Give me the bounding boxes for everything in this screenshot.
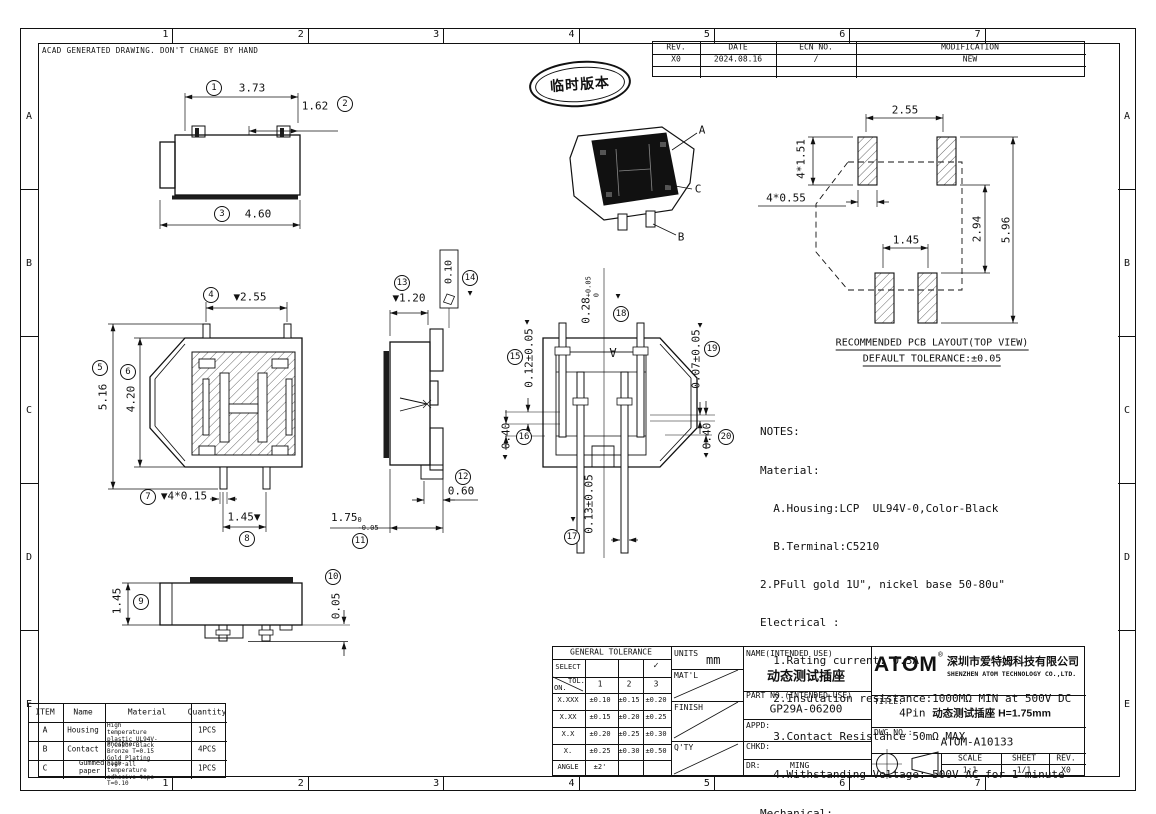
major-dim-marker: ▼: [704, 451, 709, 460]
tol-row-label: ANGLE: [557, 763, 578, 771]
balloon-2: 2: [337, 96, 353, 112]
tol-value: ±0.30: [618, 747, 639, 755]
pcb-dim-top-pitch: 2.55: [892, 104, 919, 117]
material-row-material: high-temperature adhesive tape T=0.10: [107, 761, 161, 788]
chkd-label: CHKD:: [746, 742, 770, 751]
on-label: ON.: [554, 684, 567, 692]
balloon-6: 6: [120, 364, 136, 380]
dwg-no-value: ATOM-A10133: [941, 736, 1014, 749]
dwg-no-label: DWG NO.:: [874, 728, 913, 737]
tol-value: ±0.25: [618, 730, 639, 738]
balloon-1: 1: [206, 80, 222, 96]
balloon-13: 13: [394, 275, 410, 291]
balloon-12: 12: [455, 469, 471, 485]
material-row-item: C: [43, 764, 48, 773]
dim-pin-thickness: ▼4*0.15: [161, 490, 207, 503]
rev-header: REV.: [666, 43, 685, 52]
material-row-item: A: [43, 726, 48, 735]
qty-label: Q'TY: [674, 743, 693, 752]
flatness-value: 0.10: [444, 260, 455, 284]
tol-value: ±0.25: [645, 713, 666, 721]
dim-depth: 1.750-0.05: [331, 506, 379, 532]
dim-total-height: 5.16: [97, 384, 110, 411]
rev-label: REV.: [1056, 754, 1075, 763]
name-label: NAME(INTENDED USE): [746, 649, 833, 658]
material-row-qty: 1PCS: [198, 764, 216, 773]
pcb-dim-bot-pitch: 1.45: [893, 234, 920, 247]
dim-standoff: 0.05: [330, 593, 343, 620]
balloon-5: 5: [92, 360, 108, 376]
balloon-4: 4: [203, 287, 219, 303]
pcb-layout-title: RECOMMENDED PCB LAYOUT(TOP VIEW): [836, 338, 1029, 351]
materials-header-qty: Quantity: [188, 708, 227, 717]
dim-front-width: 4.60: [245, 208, 272, 221]
dim-gap-028: 0.28+0.050: [580, 276, 601, 324]
dim-top-pitch: ▼2.55: [233, 291, 266, 304]
balloon-15: 15: [507, 349, 523, 365]
material-row-item: B: [43, 745, 48, 754]
material-row-qty: 4PCS: [198, 745, 216, 754]
rev-value: X0: [671, 55, 681, 64]
material-row-name: Housing: [67, 726, 99, 735]
dr-label: DR:: [746, 761, 760, 770]
note-line: Electrical :: [760, 617, 1071, 630]
materials-header-material: Material: [128, 708, 167, 717]
title-value: 4Pin 动态测试插座 H=1.75mm: [899, 706, 1051, 721]
material-row-name: Contact: [67, 745, 99, 754]
partno-label: PART NO.(INTENDED USE): [746, 691, 852, 700]
iso-label-b: B: [678, 231, 685, 244]
iso-label-c: C: [695, 183, 702, 196]
major-dim-marker: ▼: [503, 453, 508, 462]
section-view-geometry: [505, 268, 715, 558]
units-label: UNITS: [674, 649, 698, 658]
balloon-3: 3: [214, 206, 230, 222]
materials-header-name: Name: [73, 708, 92, 717]
bottom-view-geometry: [122, 577, 350, 656]
registered-mark: ®: [938, 650, 943, 659]
general-tolerance-title: GENERAL TOLERANCE: [570, 648, 652, 657]
dim-body-height: 4.20: [125, 386, 138, 413]
scale-value: 1:1: [963, 766, 977, 775]
pcb-dim-pad-len: 4*1.51: [795, 139, 808, 179]
note-line: B.Terminal:C5210: [760, 541, 1071, 554]
sheet-label: SHEET: [1012, 754, 1036, 763]
pcb-default-tolerance: DEFAULT TOLERANCE:±0.05: [863, 354, 1001, 367]
dim-contact-013: 0.13±0.05: [583, 474, 596, 534]
balloon-17: 17: [564, 529, 580, 545]
balloon-18: 18: [613, 306, 629, 322]
tol-col-1: 1: [598, 680, 603, 689]
company-name-cn: 深圳市爱特姆科技有限公司: [947, 653, 1079, 669]
note-line: Mechanical:: [760, 808, 1071, 814]
sheet-value: 1/1: [1017, 766, 1031, 775]
dim-side-height: 1.45: [111, 588, 124, 615]
iso-view-geometry: [570, 127, 697, 235]
balloon-14: 14: [462, 270, 478, 286]
balloon-9: 9: [133, 594, 149, 610]
ecn-header: ECN NO.: [799, 43, 833, 52]
major-dim-marker: ▼: [698, 321, 703, 330]
units-value: mm: [706, 653, 720, 667]
tol-value: ±0.20: [589, 730, 610, 738]
dim-contact-007: 0.07±0.05: [690, 329, 703, 389]
modification-value: NEW: [963, 55, 977, 64]
tol-value: ±2': [594, 763, 607, 771]
select-label: SELECT: [555, 663, 580, 671]
balloon-10: 10: [325, 569, 341, 585]
tol-value: ±0.10: [589, 696, 610, 704]
note-line: A.Housing:LCP UL94V-0,Color-Black: [760, 503, 1071, 516]
tol-value: ±0.30: [645, 730, 666, 738]
appd-label: APPD:: [746, 721, 770, 730]
date-value: 2024.08.16: [714, 55, 762, 64]
date-header: DATE: [728, 43, 747, 52]
rev-value: X0: [1061, 766, 1071, 775]
note-line: NOTES:: [760, 426, 1071, 439]
balloon-8: 8: [239, 531, 255, 547]
material-row-qty: 1PCS: [198, 726, 216, 735]
iso-label-a: A: [699, 124, 706, 137]
dim-front-pitch: 3.73: [239, 82, 266, 95]
major-dim-marker: ▼: [525, 318, 530, 327]
material-row-name: Gummed paper: [79, 760, 107, 775]
balloon-7: 7: [140, 489, 156, 505]
dim-bottom-pitch: 1.45▼: [227, 511, 260, 524]
balloon-11: 11: [352, 533, 368, 549]
major-dim-marker: ▼: [616, 292, 621, 301]
dim-contact-012: 0.12±0.05: [523, 328, 536, 388]
pcb-dim-outer: 5.96: [1000, 217, 1013, 244]
tol-row-label: X.: [564, 747, 572, 755]
matl-label: MAT'L: [674, 671, 698, 680]
tol-value: ±0.15: [618, 696, 639, 704]
note-line: 2.PFull gold 1U", nickel base 50-80u": [760, 579, 1071, 592]
pcb-dim-inner: 2.94: [971, 216, 984, 243]
dim-040-right: 0.40: [701, 423, 714, 450]
ecn-value: /: [814, 55, 819, 64]
balloon-19: 19: [704, 341, 720, 357]
pcb-dim-pad-width: 4*0.55: [766, 192, 806, 205]
tol-col-2: 2: [627, 680, 632, 689]
scale-label: SCALE: [958, 754, 982, 763]
company-name-en: SHENZHEN ATOM TECHNOLOGY CO.,LTD.: [947, 670, 1076, 678]
datum-a-symbol: A: [609, 345, 616, 359]
atom-logo: ATOM: [874, 653, 938, 677]
tol-value: ±0.25: [589, 747, 610, 755]
balloon-20: 20: [718, 429, 734, 445]
dim-040-left: 0.40: [500, 423, 513, 450]
drawing-sheet: 1234567 1234567 ABCDE ABCDE ACAD GENERAT…: [0, 0, 1156, 814]
tol-value: ±0.15: [589, 713, 610, 721]
dim-front-offset: 1.62: [302, 100, 329, 113]
major-dim-marker: ▼: [468, 289, 473, 298]
tol-label: TOL.: [568, 677, 585, 685]
tol-value: ±0.20: [618, 713, 639, 721]
tol-value: ±0.50: [645, 747, 666, 755]
note-line: Material:: [760, 465, 1071, 478]
major-dim-marker: ▼: [571, 515, 576, 524]
finish-label: FINISH: [674, 703, 703, 712]
dim-side-width: ▼1.20: [392, 292, 425, 305]
balloon-16: 16: [516, 429, 532, 445]
dr-value: MING: [790, 761, 809, 770]
stamp-text: 临时版本: [534, 63, 626, 104]
tol-value: ±0.20: [645, 696, 666, 704]
tol-row-label: X.X: [562, 730, 575, 738]
modification-header: MODIFICATION: [941, 43, 999, 52]
partno-value: GP29A-06200: [770, 703, 843, 716]
name-value: 动态测试插座: [767, 666, 845, 685]
select-checkmark: ✓: [653, 661, 658, 671]
dim-tab-width: 0.60: [448, 485, 475, 498]
tol-row-label: X.XX: [560, 713, 577, 721]
tol-col-3: 3: [654, 680, 659, 689]
tol-row-label: X.XXX: [557, 696, 578, 704]
materials-header-item: ITEM: [35, 708, 54, 717]
